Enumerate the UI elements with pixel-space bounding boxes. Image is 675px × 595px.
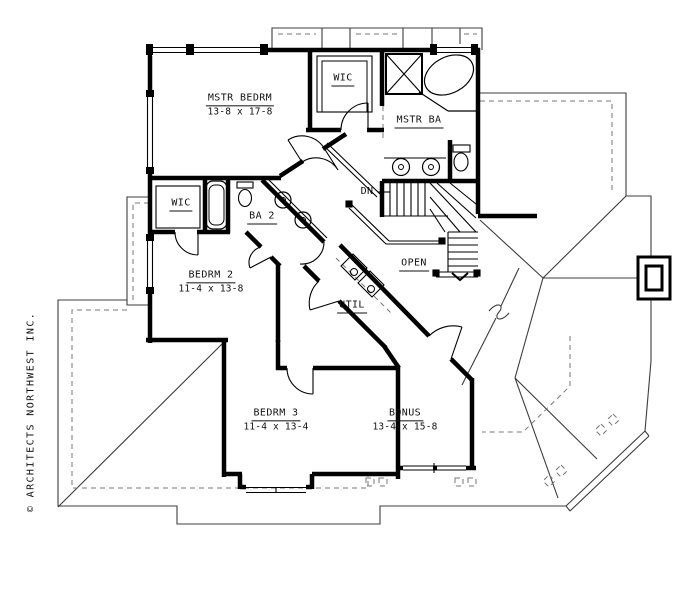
chimney [638, 257, 670, 299]
room-label-mstr-ba: MSTR BA [395, 114, 444, 129]
fixtures [156, 47, 480, 297]
laundry-fixtures [341, 254, 384, 297]
break-line-squiggle [489, 305, 509, 319]
bathtub-fixture [418, 47, 481, 111]
vanity2-sinks [266, 177, 327, 238]
room-label-wic-left: WIC [169, 197, 192, 212]
room-label-ba2: BA 2 [247, 210, 277, 225]
stairs-dn-label: DN [359, 185, 376, 199]
room-label-bedrm3: BEDRM 3 11-4 x 13-4 [243, 406, 308, 433]
toilet-fixture [453, 145, 470, 171]
open-below-label: OPEN [399, 257, 429, 272]
toilet2-fixture [237, 182, 253, 207]
bathtub2-fixture [206, 181, 227, 229]
room-label-wic-top: WIC [331, 72, 354, 87]
door-swings [175, 103, 462, 394]
staircase [378, 183, 480, 280]
vanity-sinks [384, 158, 446, 176]
room-label-bedrm2: BEDRM 2 11-4 x 13-8 [178, 268, 243, 295]
room-label-mstr-bedrm: MSTR BEDRM 13-8 x 17-8 [206, 91, 274, 118]
room-label-util: UTIL [337, 299, 367, 314]
shower-fixture [386, 54, 422, 94]
architect-copyright-watermark: © ARCHITECTS NORTHWEST INC. [26, 312, 37, 512]
room-label-bonus: BONUS 13-4 x 15-8 [372, 406, 437, 433]
floor-plan: MSTR BEDRM 13-8 x 17-8 WIC MSTR BA WIC B… [0, 0, 675, 595]
floorplan-drawing [0, 0, 675, 595]
